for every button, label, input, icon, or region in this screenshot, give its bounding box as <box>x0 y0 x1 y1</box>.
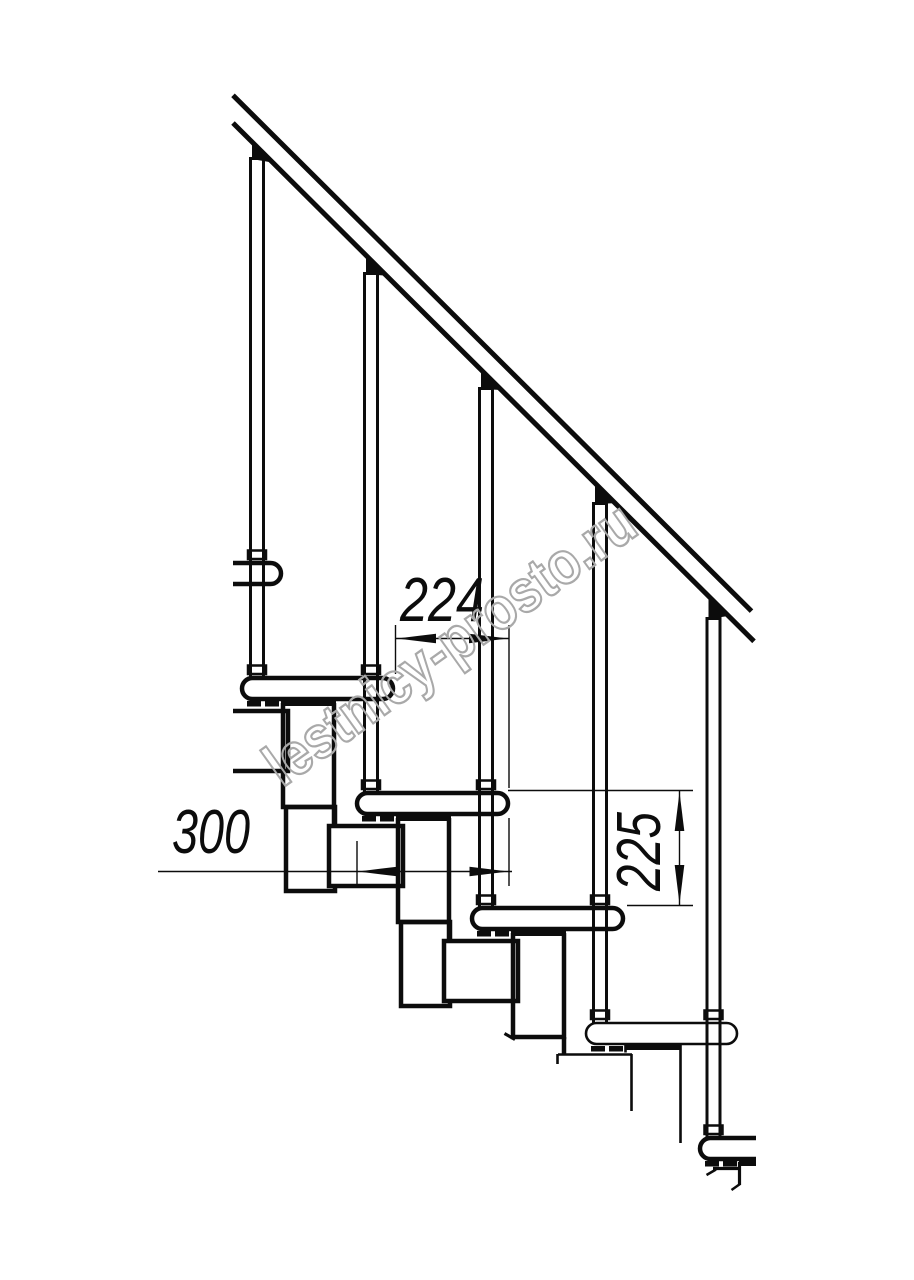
svg-text:300: 300 <box>172 798 250 867</box>
svg-text:225: 225 <box>605 812 674 892</box>
